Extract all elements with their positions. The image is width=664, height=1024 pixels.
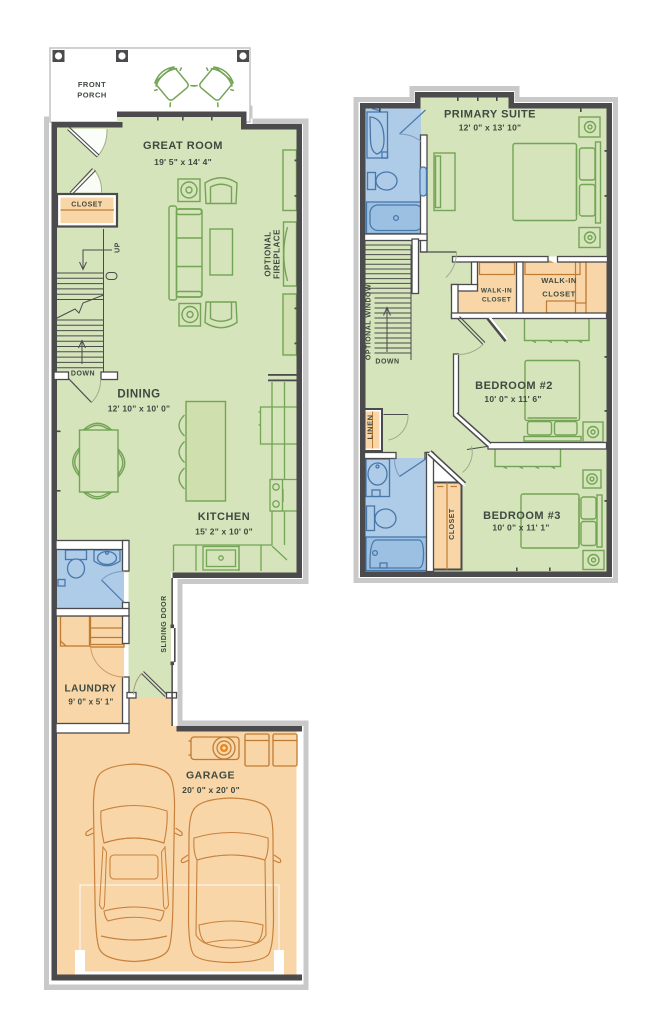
svg-text:SLIDING DOOR: SLIDING DOOR xyxy=(161,595,168,652)
svg-text:BEDROOM #2: BEDROOM #2 xyxy=(475,380,553,392)
svg-text:LAUNDRY: LAUNDRY xyxy=(64,684,116,695)
svg-text:12' 10" x 10' 0": 12' 10" x 10' 0" xyxy=(108,404,171,414)
svg-text:WALK-IN: WALK-IN xyxy=(541,276,577,285)
svg-text:LINEN: LINEN xyxy=(366,415,375,440)
svg-text:BEDROOM #3: BEDROOM #3 xyxy=(483,510,561,522)
svg-text:19' 5" x 14' 4": 19' 5" x 14' 4" xyxy=(154,157,212,167)
svg-text:FIREPLACE: FIREPLACE xyxy=(273,229,282,279)
svg-text:OPTIONAL: OPTIONAL xyxy=(264,231,273,276)
svg-text:12' 0" x 13' 10": 12' 0" x 13' 10" xyxy=(459,123,522,133)
svg-text:WALK-IN: WALK-IN xyxy=(481,288,512,295)
svg-text:CLOSET: CLOSET xyxy=(449,508,456,540)
svg-text:10' 0" x 11' 1": 10' 0" x 11' 1" xyxy=(492,523,549,533)
svg-text:10' 0" x 11' 6": 10' 0" x 11' 6" xyxy=(484,394,541,404)
svg-text:20' 0" x 20' 0": 20' 0" x 20' 0" xyxy=(182,785,240,795)
svg-text:PRIMARY SUITE: PRIMARY SUITE xyxy=(444,109,536,121)
svg-text:15' 2" x 10' 0": 15' 2" x 10' 0" xyxy=(195,527,253,537)
svg-text:9' 0" x 5' 1": 9' 0" x 5' 1" xyxy=(68,698,113,707)
svg-text:CLOSET: CLOSET xyxy=(71,202,103,209)
svg-text:CLOSET: CLOSET xyxy=(482,297,511,304)
svg-text:DINING: DINING xyxy=(117,389,160,401)
svg-text:CLOSET: CLOSET xyxy=(542,290,575,299)
svg-text:PORCH: PORCH xyxy=(77,91,107,100)
svg-text:UP: UP xyxy=(115,242,122,253)
svg-text:KITCHEN: KITCHEN xyxy=(198,511,250,523)
svg-text:DOWN: DOWN xyxy=(375,359,399,366)
svg-text:GREAT ROOM: GREAT ROOM xyxy=(143,140,223,152)
svg-text:FRONT: FRONT xyxy=(78,80,106,89)
svg-text:GARAGE: GARAGE xyxy=(186,770,235,782)
svg-text:OPTIONAL WINDOW: OPTIONAL WINDOW xyxy=(366,284,373,360)
svg-text:DOWN: DOWN xyxy=(71,371,95,378)
